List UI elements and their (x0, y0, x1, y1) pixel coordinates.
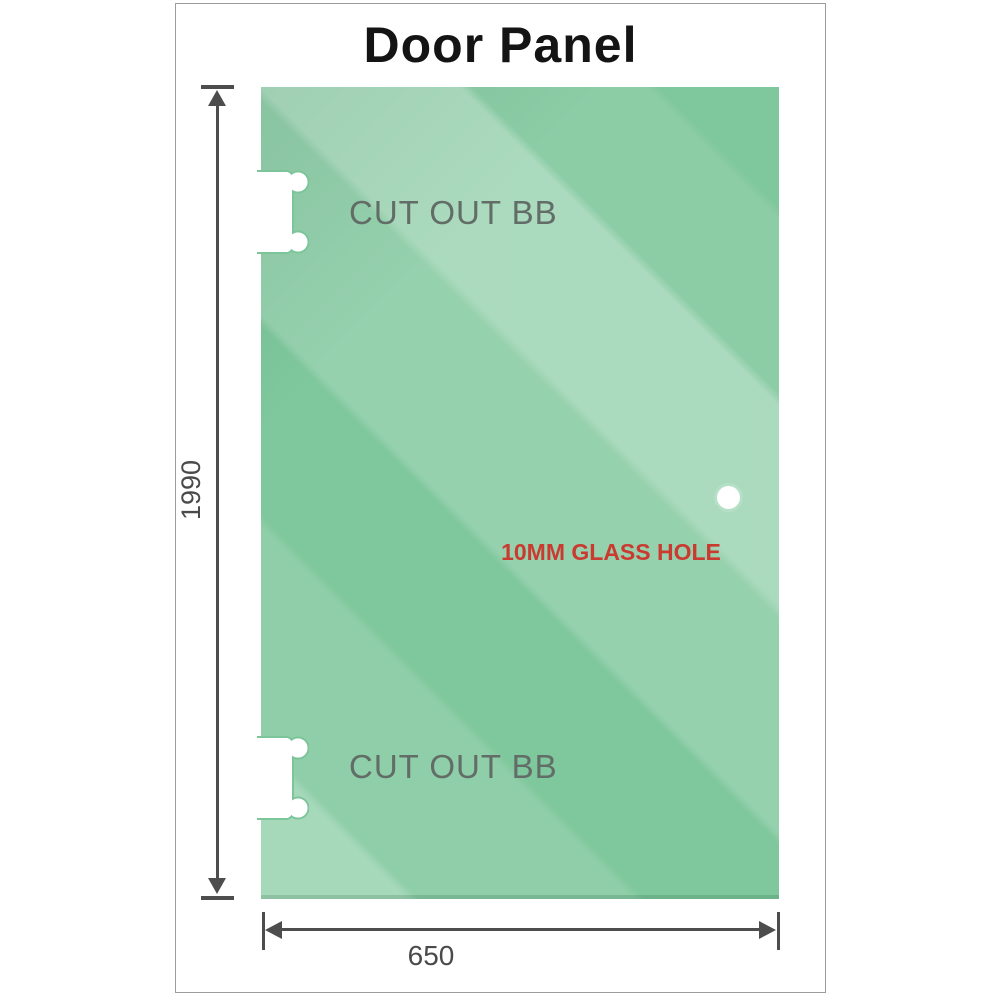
cutout-label-top: CUT OUT BB (349, 194, 558, 232)
width-dim-line (271, 928, 771, 931)
width-dim-arrow-right-icon (759, 921, 776, 939)
page-title: Door Panel (176, 16, 825, 74)
glass-hole-icon (714, 483, 743, 512)
glass-panel: CUT OUT BB CUT OUT BB 10MM GLASS HOLE (261, 87, 779, 899)
height-dim-value: 1990 (176, 450, 204, 530)
drawing-card: Door Panel CUT OUT BB CUT OUT BB 10MM GL… (175, 3, 826, 993)
hinge-cutout-top-icon (257, 168, 309, 256)
height-dim-cap-bottom (201, 896, 234, 900)
height-dim-line (216, 99, 219, 889)
height-dim-cap-top (201, 85, 234, 89)
cutout-label-bottom: CUT OUT BB (349, 748, 558, 786)
width-dim-tick-right (777, 912, 780, 950)
hinge-cutout-bottom-icon (257, 734, 309, 822)
height-dim-arrow-down-icon (208, 878, 226, 894)
width-dim-value: 650 (376, 940, 486, 972)
glass-hole-label: 10MM GLASS HOLE (491, 539, 731, 566)
